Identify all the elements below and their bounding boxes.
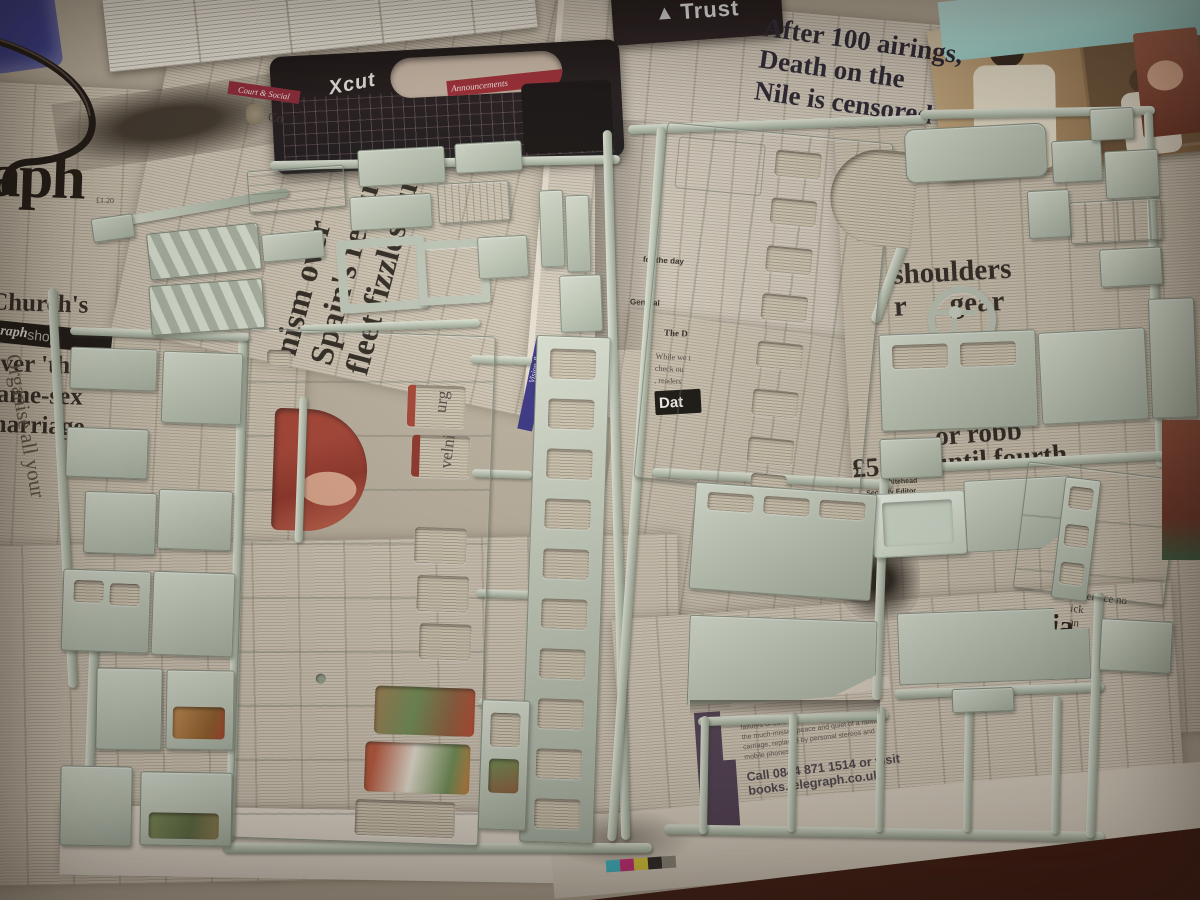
photo-vignette — [0, 0, 1200, 900]
photo-scene: ▲ Trust Announcements Xcut aph £1.20 Chu… — [0, 0, 1200, 900]
